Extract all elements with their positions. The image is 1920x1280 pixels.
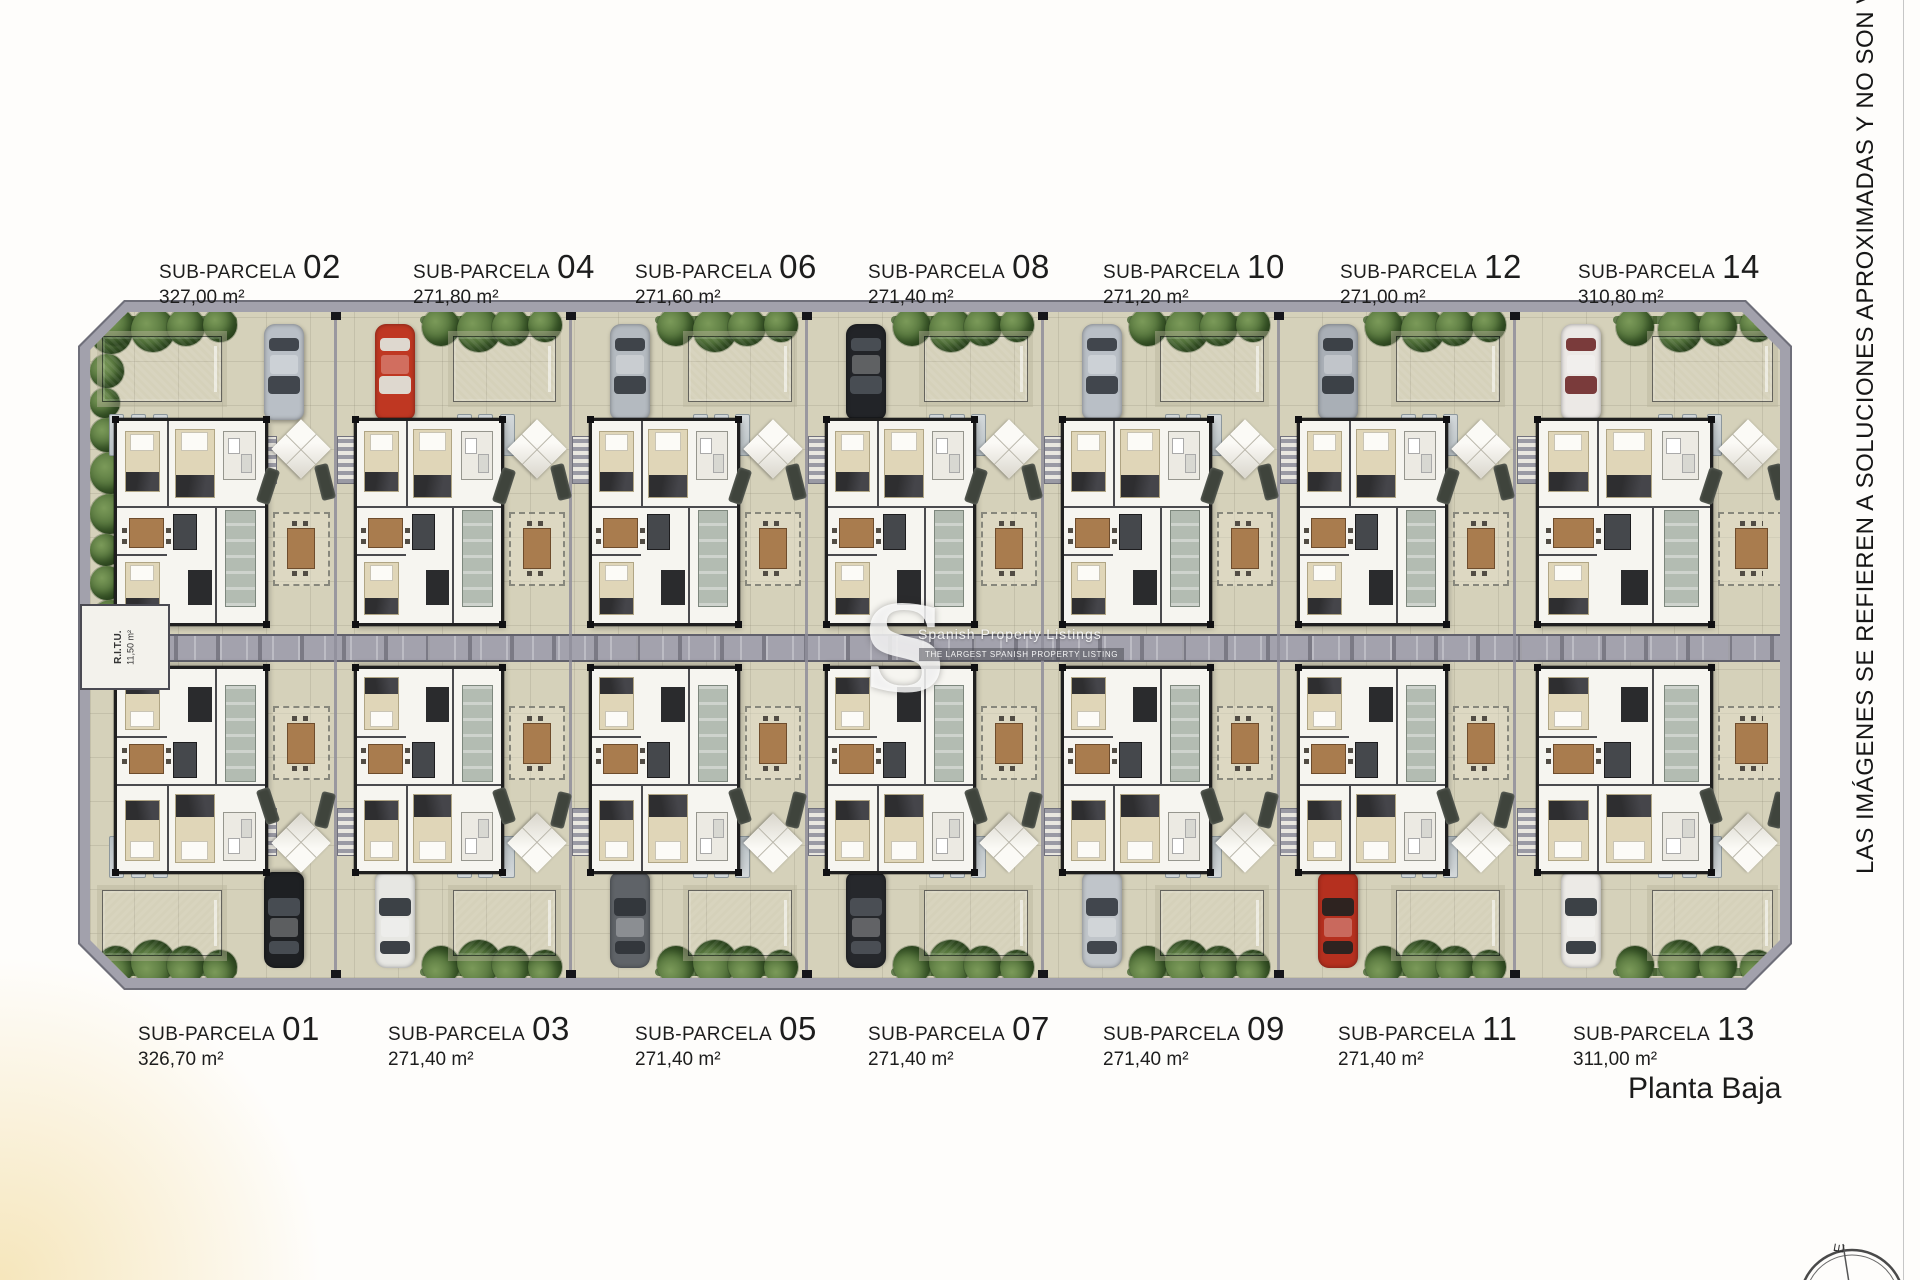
sofa [225,510,256,607]
dining-table [1311,744,1346,774]
villa-building [1297,666,1448,874]
dining-table [1553,744,1594,774]
parcel-area: 271,60 m² [635,287,817,309]
parcel-area: 310,80 m² [1578,287,1760,309]
bed [364,562,399,615]
kitchen-counter [1119,514,1142,550]
parcel-number: 02 [303,248,341,286]
bathroom-fixtures [1662,812,1700,860]
interior-wall [406,421,408,506]
interior-wall [688,669,690,786]
pergola-dining [1217,706,1274,780]
interior-wall [1300,506,1445,508]
villa-building [1536,666,1713,874]
interior-wall [1349,421,1351,506]
sunbed [314,791,336,829]
parcel-number: 08 [1012,248,1050,286]
parcel-label-prefix: SUB-PARCELA [635,1024,772,1046]
bed [1548,562,1589,615]
bed [1548,800,1589,861]
parked-car [1561,324,1601,420]
swimming-pool [1652,336,1773,402]
sofa [1664,685,1700,782]
ritu-name: R.I.T.U. [113,630,126,665]
bed [1548,677,1589,730]
outdoor-table [287,528,315,569]
villa-building [1536,418,1713,626]
bathroom-fixtures [1168,431,1200,479]
outdoor-table [1735,723,1767,764]
bed [648,794,687,863]
parcel-label-prefix: SUB-PARCELA [635,262,772,284]
parked-car [1082,872,1122,968]
outdoor-table [1735,528,1767,569]
villa-building [114,418,268,626]
parcel-label-prefix: SUB-PARCELA [868,262,1005,284]
interior-wall [924,506,926,623]
interior-wall [1597,421,1599,506]
parcel-area: 271,40 m² [868,1049,1050,1071]
bed [1307,431,1342,492]
coffee-table [188,687,212,721]
interior-wall [1396,506,1398,623]
bed [175,429,215,498]
bed [599,677,634,730]
sunbed [785,791,807,829]
parcel-area: 271,00 m² [1340,287,1522,309]
bed [1071,431,1106,492]
bed [1120,794,1159,863]
interior-wall [641,786,643,871]
parcel-area: 271,40 m² [388,1049,570,1071]
parcel-number: 14 [1722,248,1760,286]
bed [835,677,870,730]
bed [364,431,399,492]
interior-wall [215,669,217,786]
dining-table [839,518,874,548]
bathroom-fixtures [696,812,728,860]
villa-plot-11 [1278,658,1514,978]
parcel-number: 12 [1484,248,1522,286]
interior-wall [1396,669,1398,786]
svg-text:E: E [1830,1242,1847,1254]
parcel-label-prefix: SUB-PARCELA [1103,1024,1240,1046]
outdoor-table [759,723,786,764]
coffee-table [1133,570,1156,604]
sofa [1406,510,1436,607]
parcel-label-05: SUB-PARCELA05271,40 m² [635,1010,817,1071]
kitchen-counter [883,742,906,778]
bed [599,431,634,492]
bed [1071,800,1106,861]
dining-table [603,518,638,548]
interior-wall [357,784,501,786]
kitchen-counter [883,514,906,550]
dining-table [1553,518,1594,548]
interior-wall [1539,506,1710,508]
bathroom-fixtures [1662,431,1700,479]
parcel-number: 09 [1247,1010,1285,1048]
parked-car [846,872,886,968]
sunbed [549,463,571,501]
parked-car [1561,872,1601,968]
pergola-dining [1718,512,1784,586]
coffee-table [1369,570,1392,604]
coffee-table [426,687,449,721]
villa-building [1061,418,1212,626]
coffee-table [426,570,449,604]
parcel-number: 06 [779,248,817,286]
parcel-area: 326,70 m² [138,1049,320,1071]
parcel-label-prefix: SUB-PARCELA [388,1024,525,1046]
interior-wall [406,786,408,871]
parcel-number: 13 [1717,1010,1755,1048]
dining-table [603,744,638,774]
villa-plot-14 [1514,314,1790,634]
sunbed [1021,463,1043,501]
entry-stairs [1517,436,1537,484]
bathroom-fixtures [932,431,964,479]
parcel-label-14: SUB-PARCELA14310,80 m² [1578,248,1760,309]
kitchen-counter [1119,742,1142,778]
parcel-number: 04 [557,248,595,286]
pergola-dining [1453,512,1510,586]
coffee-table [188,570,212,604]
interior-wall [641,421,643,506]
swimming-pool [1396,890,1500,956]
sunbed [1493,791,1515,829]
tree-icon [1616,308,1654,346]
swimming-pool [924,890,1028,956]
kitchen-counter [412,742,435,778]
bed [884,794,923,863]
swimming-pool [1652,890,1773,956]
interior-wall [117,736,167,738]
site-ground [90,312,1780,978]
sunbed [785,463,807,501]
kitchen-counter [173,514,197,550]
plan-title: Planta Baja [1628,1072,1781,1106]
dining-table [129,518,164,548]
parcel-label-prefix: SUB-PARCELA [1578,262,1715,284]
interior-wall [592,554,641,556]
dining-table [1311,518,1346,548]
bed [125,800,160,861]
parcel-area: 271,40 m² [1338,1049,1517,1071]
parked-car [375,324,415,420]
interior-wall [1652,669,1654,786]
swimming-pool [924,336,1028,402]
parcel-label-prefix: SUB-PARCELA [413,262,550,284]
parcel-label-prefix: SUB-PARCELA [159,262,296,284]
villa-building [825,418,976,626]
outdoor-table [1231,723,1258,764]
interior-wall [1539,554,1597,556]
interior-wall [828,554,877,556]
bathroom-fixtures [223,431,255,479]
villa-plot-03 [335,658,570,978]
pergola-dining [509,512,565,586]
pergola-dining [981,706,1038,780]
parcel-label-04: SUB-PARCELA04271,80 m² [413,248,595,309]
interior-wall [1300,736,1349,738]
parcel-label-07: SUB-PARCELA07271,40 m² [868,1010,1050,1071]
sunbed [1493,463,1515,501]
pergola-dining [745,706,802,780]
bathroom-fixtures [1404,431,1436,479]
swimming-pool [1160,336,1264,402]
interior-wall [117,784,265,786]
villa-plot-05 [570,658,806,978]
sunbed [1257,463,1279,501]
interior-wall [924,669,926,786]
interior-wall [1064,784,1209,786]
parcel-area: 327,00 m² [159,287,341,309]
parcel-label-09: SUB-PARCELA09271,40 m² [1103,1010,1285,1071]
sunbed [314,463,336,501]
interior-wall [1300,784,1445,786]
kitchen-counter [1604,514,1631,550]
villa-plot-08 [806,314,1042,634]
bathroom-fixtures [461,812,493,860]
swimming-pool [102,890,222,956]
kitchen-counter [412,514,435,550]
bed [884,429,923,498]
villa-building [1297,418,1448,626]
pergola-dining [1718,706,1784,780]
interior-wall [828,784,973,786]
bed [1606,429,1652,498]
site-plan-page: R.I.T.U. 11,50 m² S Spanish Property Lis… [0,0,1920,1280]
interior-wall [167,421,169,506]
bathroom-fixtures [1168,812,1200,860]
parcel-label-prefix: SUB-PARCELA [1338,1024,1475,1046]
bed [413,429,452,498]
sofa [225,685,256,782]
parcel-number: 05 [779,1010,817,1048]
bathroom-fixtures [461,431,493,479]
interior-wall [1597,786,1599,871]
bed [1071,677,1106,730]
ritu-utility-box: R.I.T.U. 11,50 m² [80,604,170,690]
coffee-table [661,570,684,604]
outdoor-table [523,723,550,764]
interior-wall [1539,736,1597,738]
page-edge-line [1903,0,1904,1280]
villa-building [825,666,976,874]
swimming-pool [688,336,792,402]
parcel-label-prefix: SUB-PARCELA [138,1024,275,1046]
bed [835,562,870,615]
bed [599,800,634,861]
interior-wall [1652,506,1654,623]
bed [125,431,160,492]
entry-stairs [1517,808,1537,856]
parcel-label-08: SUB-PARCELA08271,40 m² [868,248,1050,309]
parked-car [264,872,304,968]
interior-wall [592,784,737,786]
bed [1307,677,1342,730]
villa-building [1061,666,1212,874]
bed [1548,431,1589,492]
kitchen-counter [647,514,670,550]
interior-wall [1064,554,1113,556]
pergola-dining [273,706,331,780]
interior-wall [1349,786,1351,871]
villa-plot-10 [1042,314,1278,634]
swimming-pool [1396,336,1500,402]
villa-plot-12 [1278,314,1514,634]
parcel-label-11: SUB-PARCELA11271,40 m² [1338,1010,1517,1071]
interior-wall [828,506,973,508]
villa-plot-02 [95,314,335,634]
outdoor-table [759,528,786,569]
villa-plot-06 [570,314,806,634]
parcel-label-prefix: SUB-PARCELA [1340,262,1477,284]
sofa [462,685,492,782]
dining-table [129,744,164,774]
interior-wall [1113,786,1115,871]
parcel-area: 271,40 m² [868,287,1050,309]
coffee-table [897,687,920,721]
dining-table [368,744,403,774]
villa-plot-07 [806,658,1042,978]
bathroom-fixtures [223,812,255,860]
sofa [698,685,728,782]
interior-wall [1160,669,1162,786]
parked-car [1318,324,1358,420]
interior-wall [1064,736,1113,738]
kitchen-counter [173,742,197,778]
parcel-area: 271,20 m² [1103,287,1285,309]
villa-building [589,666,740,874]
parked-car [846,324,886,420]
pergola-dining [1453,706,1510,780]
interior-wall [452,506,454,623]
interior-wall [117,554,167,556]
parcel-label-10: SUB-PARCELA10271,20 m² [1103,248,1285,309]
sofa [1406,685,1436,782]
swimming-pool [688,890,792,956]
sunbed [1021,791,1043,829]
villa-plot-09 [1042,658,1278,978]
interior-wall [1539,784,1710,786]
interior-wall [592,506,737,508]
parcel-label-prefix: SUB-PARCELA [1573,1024,1710,1046]
sofa [698,510,728,607]
bed [364,677,399,730]
bathroom-fixtures [1404,812,1436,860]
villa-building [354,666,504,874]
dining-table [368,518,403,548]
dining-table [1075,744,1110,774]
parcel-number: 01 [282,1010,320,1048]
compass-icon: E [1788,1238,1920,1280]
interior-wall [1300,554,1349,556]
parcel-area: 271,80 m² [413,287,595,309]
coffee-table [1133,687,1156,721]
parcel-label-06: SUB-PARCELA06271,60 m² [635,248,817,309]
dining-table [1075,518,1110,548]
swimming-pool [102,336,222,402]
interior-wall [877,421,879,506]
pergola-dining [981,512,1038,586]
bed [835,800,870,861]
sunbed [1257,791,1279,829]
ritu-area: 11,50 m² [126,630,137,665]
parcel-number: 07 [1012,1010,1050,1048]
parked-car [1082,324,1122,420]
swimming-pool [453,890,556,956]
sofa [1170,685,1200,782]
legal-disclaimer: LAS IMÁGENES SE REFIEREN A SOLUCIONES AP… [1852,0,1886,874]
bed [648,429,687,498]
villa-plot-04 [335,314,570,634]
parked-car [610,872,650,968]
sunbed [549,791,571,829]
bathroom-fixtures [696,431,728,479]
parcel-label-prefix: SUB-PARCELA [868,1024,1005,1046]
coffee-table [1621,570,1648,604]
interior-wall [357,736,406,738]
bed [413,794,452,863]
parcel-number: 11 [1482,1010,1517,1048]
interior-wall [215,506,217,623]
interior-wall [167,786,169,871]
interior-wall [452,669,454,786]
kitchen-counter [1604,742,1631,778]
interior-wall [1064,506,1209,508]
parked-car [1318,872,1358,968]
interior-wall [1113,421,1115,506]
outdoor-table [995,528,1022,569]
pergola-dining [509,706,565,780]
bed [1120,429,1159,498]
parked-car [375,872,415,968]
parcel-area: 271,40 m² [635,1049,817,1071]
dining-table [839,744,874,774]
parcel-label-02: SUB-PARCELA02327,00 m² [159,248,341,309]
bed [1606,794,1652,863]
outdoor-table [287,723,315,764]
bed [1356,429,1395,498]
pergola-dining [273,512,331,586]
sofa [934,510,964,607]
villa-plot-01 [95,658,335,978]
interior-wall [688,506,690,623]
bed [1356,794,1395,863]
coffee-table [1369,687,1392,721]
interior-wall [357,554,406,556]
parcel-number: 03 [532,1010,570,1048]
interior-wall [117,506,265,508]
kitchen-counter [1355,742,1378,778]
bed [835,431,870,492]
villa-building [589,418,740,626]
interior-wall [877,786,879,871]
bed [175,794,215,863]
parcel-label-prefix: SUB-PARCELA [1103,262,1240,284]
outdoor-table [1467,528,1494,569]
parcel-label-13: SUB-PARCELA13311,00 m² [1573,1010,1755,1071]
bed [1071,562,1106,615]
sofa [1170,510,1200,607]
outdoor-table [1467,723,1494,764]
interior-wall [592,736,641,738]
outdoor-table [1231,528,1258,569]
interior-wall [828,736,877,738]
outdoor-table [523,528,550,569]
